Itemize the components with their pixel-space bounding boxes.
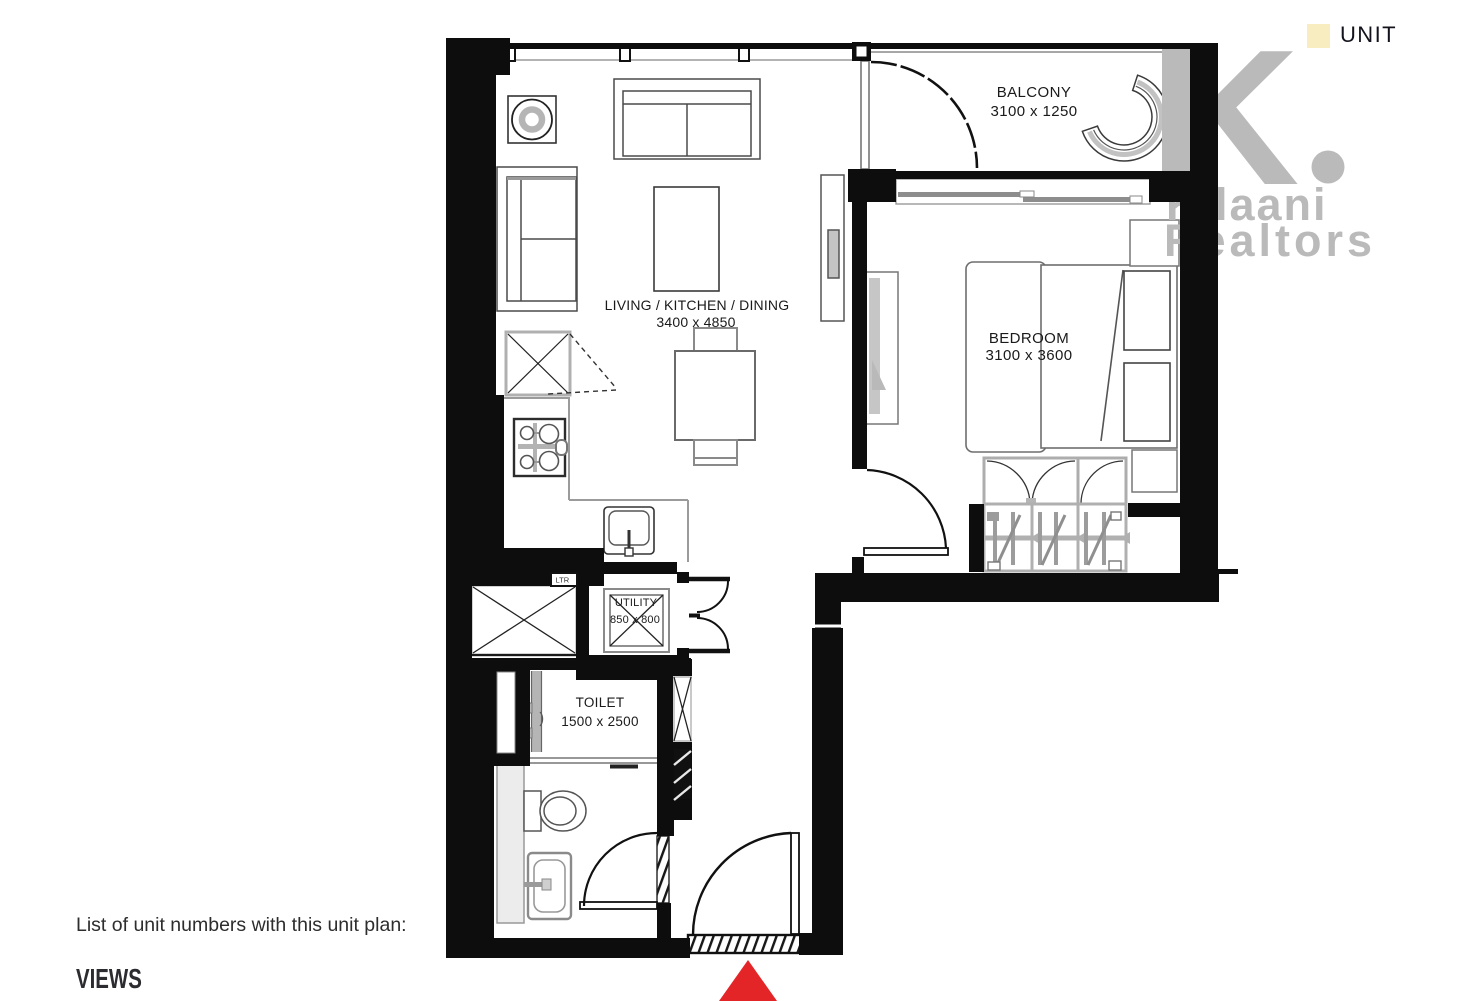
svg-text:BALCONY: BALCONY	[997, 84, 1072, 101]
svg-text:UTILITY: UTILITY	[615, 597, 658, 609]
svg-text:BEDROOM: BEDROOM	[989, 330, 1069, 347]
svg-text:List of unit numbers with this: List of unit numbers with this unit plan…	[76, 914, 407, 936]
svg-text:LIVING / KITCHEN / DINING: LIVING / KITCHEN / DINING	[605, 297, 790, 313]
svg-text:LTR: LTR	[556, 576, 570, 585]
svg-text:1500 x 2500: 1500 x 2500	[561, 714, 639, 729]
svg-text:TOILET: TOILET	[576, 695, 625, 710]
svg-text:3400 x 4850: 3400 x 4850	[656, 314, 735, 330]
svg-text:850 x 800: 850 x 800	[610, 614, 660, 626]
svg-text:3100 x 3600: 3100 x 3600	[986, 347, 1073, 364]
svg-text:3100 x 1250: 3100 x 1250	[991, 103, 1078, 120]
svg-text:VIEWS: VIEWS	[76, 964, 142, 995]
svg-text:UNIT: UNIT	[1340, 22, 1397, 47]
